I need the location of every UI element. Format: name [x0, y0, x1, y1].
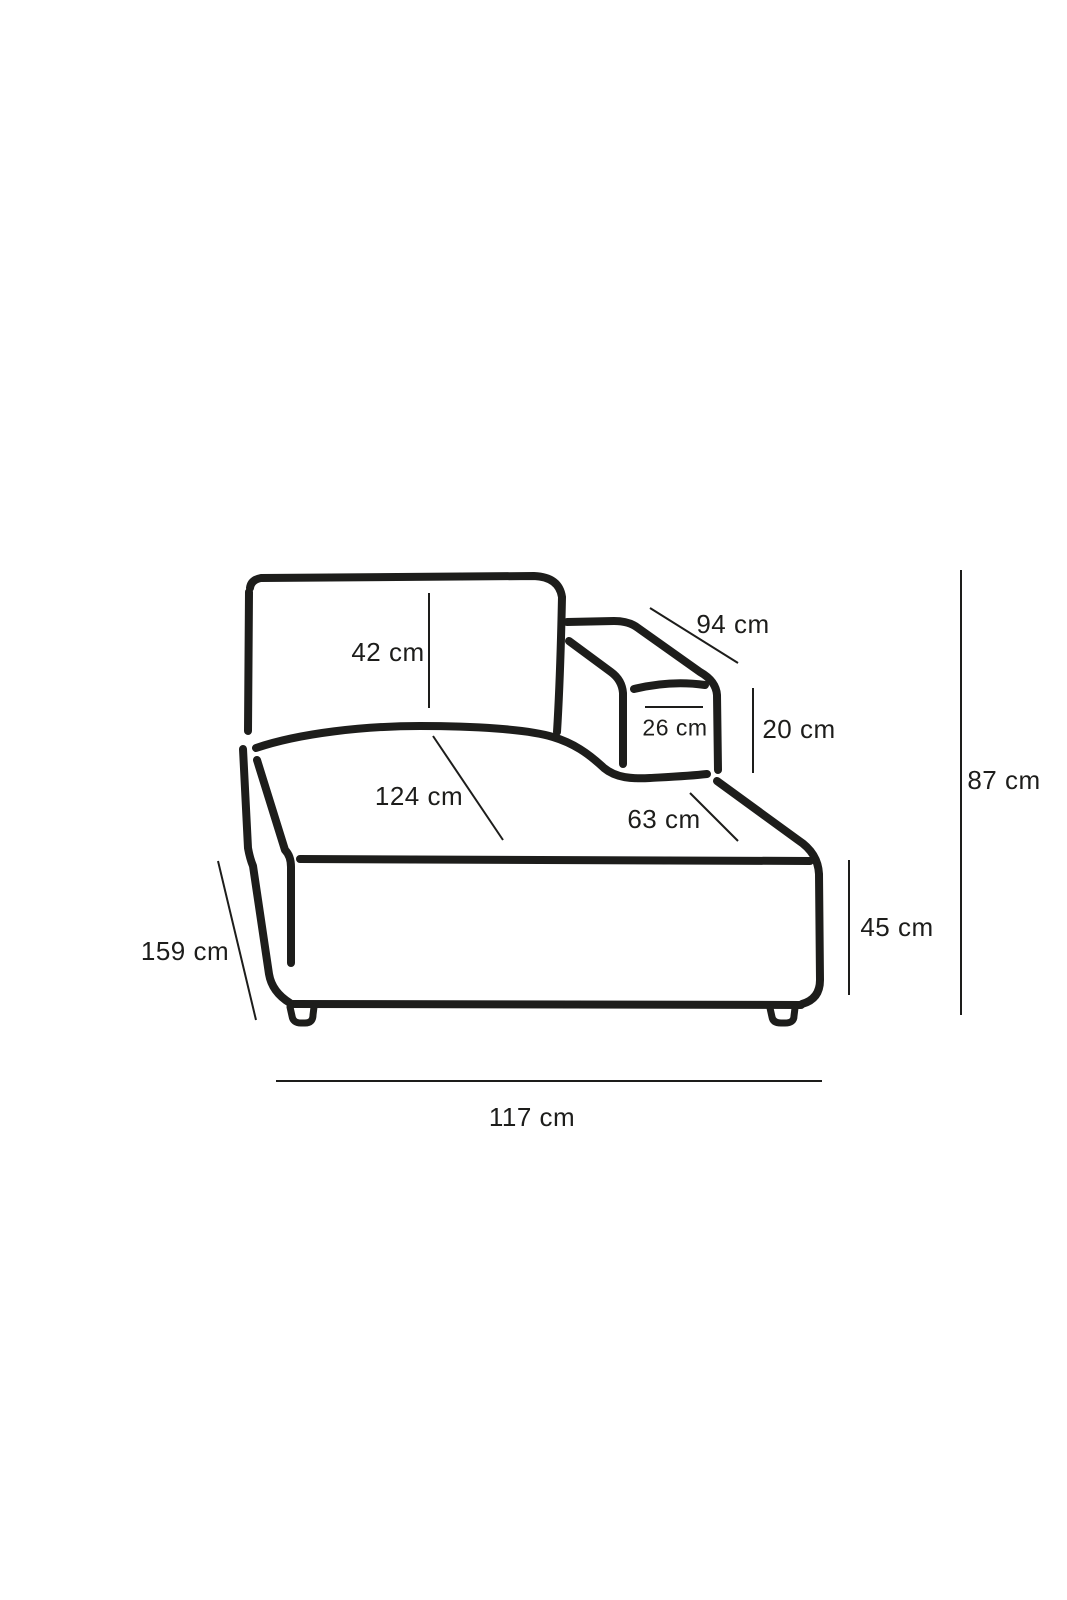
seat-front-bottom-edge	[293, 1004, 801, 1005]
seat-front-top-edge	[300, 859, 810, 861]
seat-right-edge	[717, 781, 820, 1004]
sofa-outline	[243, 576, 820, 1023]
dim-label-armrest-length: 94 cm	[696, 611, 769, 637]
right-foot	[770, 1008, 795, 1023]
dim-label-armrest-height-above-seat: 20 cm	[762, 716, 835, 742]
seat-top-curve	[256, 726, 707, 778]
dim-label-armrest-top-width: 26 cm	[642, 717, 707, 740]
dim-label-overall-depth: 159 cm	[141, 938, 229, 964]
armrest-front-top-curve	[634, 683, 705, 689]
dimension-diagram: 42 cm 94 cm 26 cm 20 cm 87 cm 124 cm 63 …	[0, 0, 1067, 1600]
sofa-line-drawing	[0, 0, 1067, 1600]
dim-label-backrest-height: 42 cm	[351, 639, 424, 665]
dim-label-right-seat-width: 63 cm	[627, 806, 700, 832]
dim-label-overall-width: 117 cm	[489, 1104, 575, 1130]
left-foot	[290, 1007, 314, 1023]
backrest-left-edge	[248, 592, 249, 731]
dim-label-overall-height: 87 cm	[967, 767, 1040, 793]
armrest-outer-edge	[567, 621, 718, 770]
dim-label-seat-base-height: 45 cm	[860, 914, 933, 940]
dim-label-seat-length: 124 cm	[375, 783, 463, 809]
